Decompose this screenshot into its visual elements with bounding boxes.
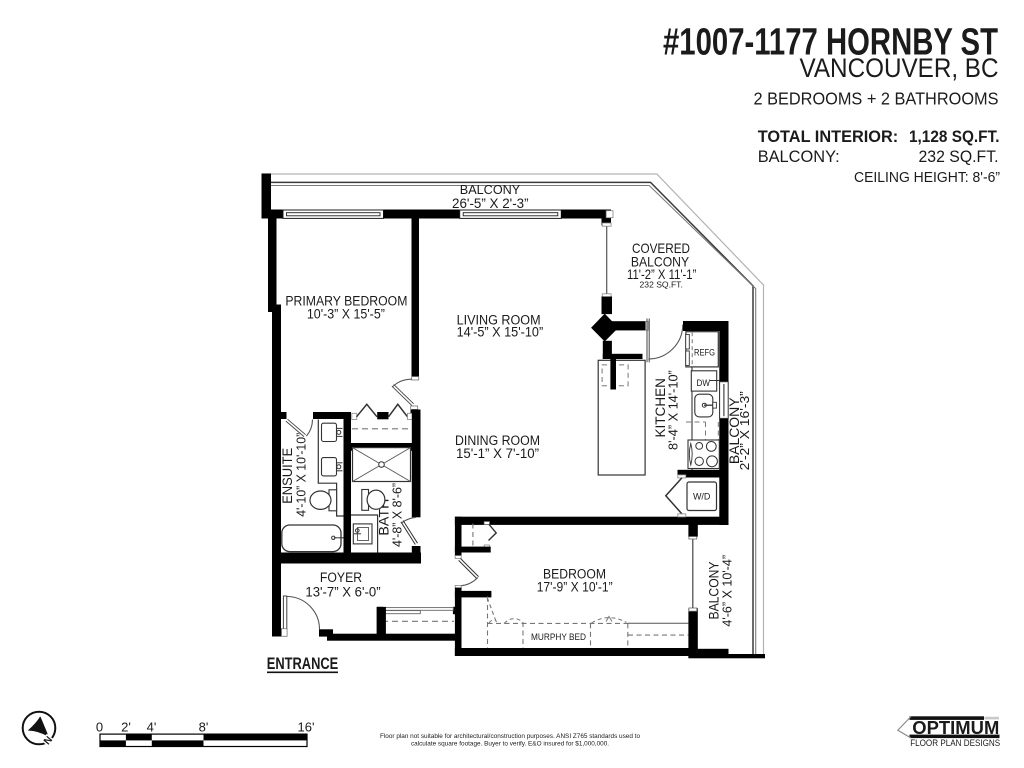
svg-text:BALCONY:: BALCONY: bbox=[758, 148, 840, 166]
svg-text:DW: DW bbox=[697, 378, 711, 388]
svg-text:13'-7” X 6'-0”: 13'-7” X 6'-0” bbox=[305, 584, 380, 599]
svg-text:calculate square footage. Buye: calculate square footage. Buyer to verif… bbox=[411, 741, 609, 748]
svg-text:1,128 SQ.FT.: 1,128 SQ.FT. bbox=[909, 128, 1000, 146]
svg-text:232 SQ.FT.: 232 SQ.FT. bbox=[919, 148, 999, 166]
svg-text:8': 8' bbox=[199, 720, 209, 735]
svg-text:REFG: REFG bbox=[694, 348, 715, 358]
svg-text:ENTRANCE: ENTRANCE bbox=[267, 655, 339, 673]
svg-text:MURPHY BED: MURPHY BED bbox=[531, 632, 586, 643]
svg-text:VANCOUVER, BC: VANCOUVER, BC bbox=[800, 53, 999, 83]
svg-text:15'-1” X 7'-10”: 15'-1” X 7'-10” bbox=[456, 446, 539, 461]
svg-text:10'-3” X 15'-5”: 10'-3” X 15'-5” bbox=[307, 306, 385, 321]
svg-text:232 SQ.FT.: 232 SQ.FT. bbox=[640, 280, 683, 290]
svg-text:Floor plan not suitable for ar: Floor plan not suitable for architectura… bbox=[380, 733, 640, 740]
svg-text:4'-6” X 10'-4”: 4'-6” X 10'-4” bbox=[719, 555, 734, 627]
svg-text:2': 2' bbox=[121, 720, 131, 735]
svg-text:BALCONY: BALCONY bbox=[460, 182, 521, 197]
svg-text:FOYER: FOYER bbox=[320, 570, 362, 585]
svg-text:4'-10” X 10'-10”: 4'-10” X 10'-10” bbox=[293, 433, 308, 517]
svg-text:17'-9” X 10'-1”: 17'-9” X 10'-1” bbox=[537, 580, 613, 595]
svg-text:2'-2” X 16'-3”: 2'-2” X 16'-3” bbox=[737, 391, 752, 470]
svg-text:26'-5” X 2'-3”: 26'-5” X 2'-3” bbox=[452, 196, 529, 211]
svg-text:0: 0 bbox=[96, 720, 103, 735]
svg-text:4': 4' bbox=[147, 720, 157, 735]
svg-text:2 BEDROOMS + 2 BATHROOMS: 2 BEDROOMS + 2 BATHROOMS bbox=[754, 88, 999, 108]
svg-text:CEILING HEIGHT: 8'-6”: CEILING HEIGHT: 8'-6” bbox=[854, 170, 1000, 186]
svg-text:8'-4” X 14'-10”: 8'-4” X 14'-10” bbox=[666, 370, 681, 450]
svg-text:14'-5” X 15'-10”: 14'-5” X 15'-10” bbox=[457, 324, 544, 339]
svg-text:4'-8” X 8'-6”: 4'-8” X 8'-6” bbox=[390, 483, 405, 547]
svg-text:16': 16' bbox=[298, 720, 315, 735]
svg-text:FLOOR PLAN DESIGNS: FLOOR PLAN DESIGNS bbox=[910, 738, 1000, 748]
svg-text:W/D: W/D bbox=[693, 492, 711, 502]
svg-text:TOTAL INTERIOR:: TOTAL INTERIOR: bbox=[758, 128, 899, 146]
